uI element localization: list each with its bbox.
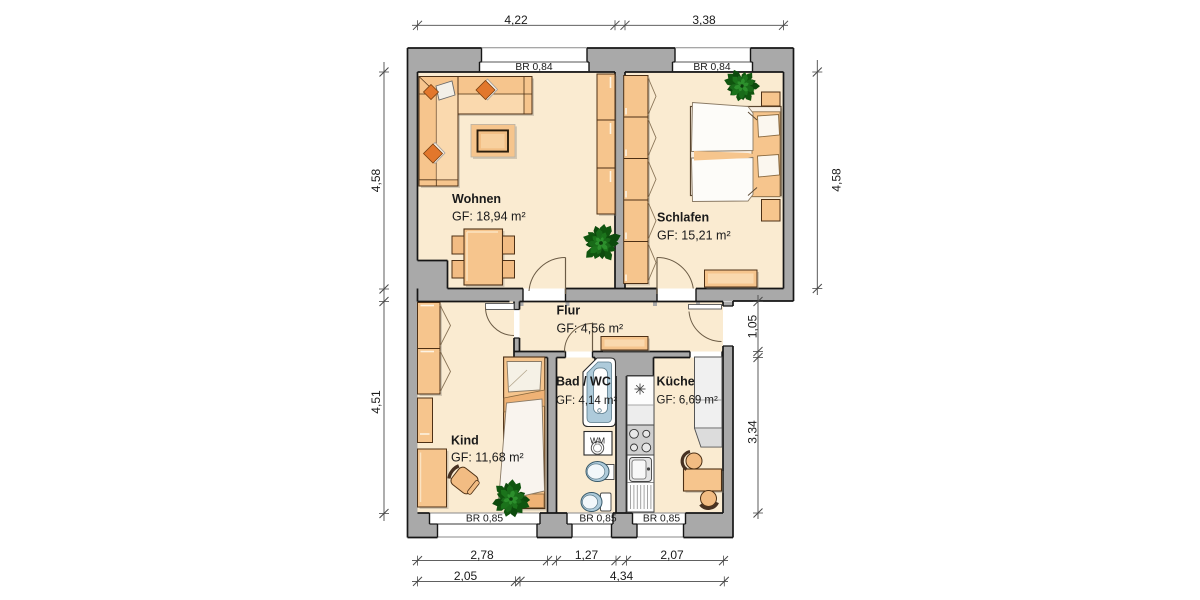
svg-text:Kind: Kind xyxy=(451,434,479,448)
svg-text:4,34: 4,34 xyxy=(610,569,634,583)
svg-text:Küche: Küche xyxy=(657,375,695,389)
svg-text:GF: 18,94 m²: GF: 18,94 m² xyxy=(452,210,526,224)
svg-text:Schlafen: Schlafen xyxy=(657,211,709,225)
svg-text:GF: 15,21 m²: GF: 15,21 m² xyxy=(657,229,731,243)
svg-text:4,58: 4,58 xyxy=(830,168,844,192)
svg-text:GF: 6,69 m²: GF: 6,69 m² xyxy=(657,395,719,407)
svg-text:BR 0,85: BR 0,85 xyxy=(579,514,616,525)
svg-text:3,34: 3,34 xyxy=(746,420,760,444)
svg-text:Bad / WC: Bad / WC xyxy=(556,375,611,389)
svg-text:1,05: 1,05 xyxy=(746,314,760,338)
svg-text:4,58: 4,58 xyxy=(369,168,383,192)
svg-text:3,38: 3,38 xyxy=(692,13,716,27)
svg-text:BR 0,85: BR 0,85 xyxy=(643,514,680,525)
svg-text:2,78: 2,78 xyxy=(470,548,494,562)
svg-text:4,51: 4,51 xyxy=(369,390,383,414)
svg-text:BR 0,85: BR 0,85 xyxy=(466,514,503,525)
svg-text:Wohnen: Wohnen xyxy=(452,192,501,206)
svg-text:WM: WM xyxy=(590,436,605,446)
svg-text:GF: 11,68 m²: GF: 11,68 m² xyxy=(451,451,524,465)
svg-text:GF: 4,56 m²: GF: 4,56 m² xyxy=(557,322,624,336)
svg-text:BR 0,84: BR 0,84 xyxy=(693,62,730,73)
svg-text:1,27: 1,27 xyxy=(575,548,599,562)
svg-text:BR 0,84: BR 0,84 xyxy=(515,62,552,73)
svg-text:GF: 4,14 m²: GF: 4,14 m² xyxy=(556,395,618,407)
svg-text:2,05: 2,05 xyxy=(454,569,478,583)
svg-text:2,07: 2,07 xyxy=(660,548,684,562)
svg-text:4,22: 4,22 xyxy=(504,13,528,27)
svg-text:Flur: Flur xyxy=(557,304,581,318)
